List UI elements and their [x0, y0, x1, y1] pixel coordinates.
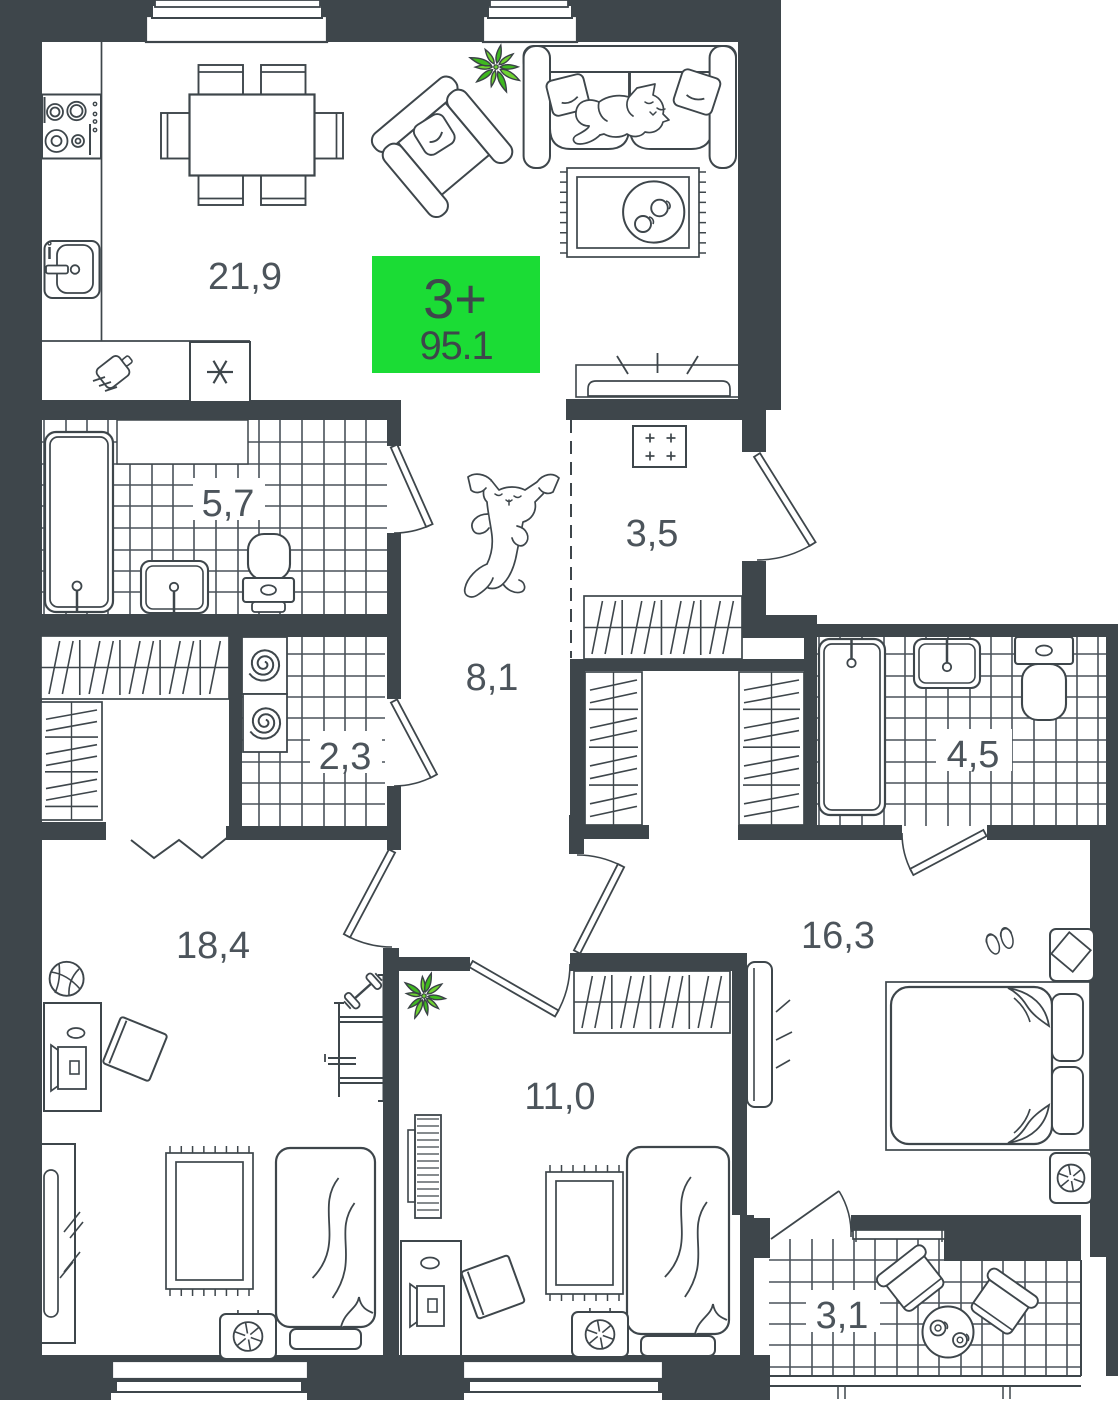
- svg-text:5,7: 5,7: [202, 483, 255, 525]
- svg-text:16,3: 16,3: [801, 915, 875, 957]
- svg-text:21,9: 21,9: [208, 256, 282, 298]
- svg-text:2,3: 2,3: [319, 736, 372, 778]
- svg-text:11,0: 11,0: [524, 1076, 595, 1118]
- svg-text:8,1: 8,1: [466, 657, 519, 699]
- svg-text:95.1: 95.1: [419, 324, 492, 368]
- svg-text:3,5: 3,5: [626, 513, 679, 555]
- svg-text:3+: 3+: [423, 267, 487, 330]
- svg-text:4,5: 4,5: [947, 734, 1000, 776]
- svg-text:18,4: 18,4: [176, 925, 250, 967]
- svg-text:3,1: 3,1: [816, 1295, 869, 1337]
